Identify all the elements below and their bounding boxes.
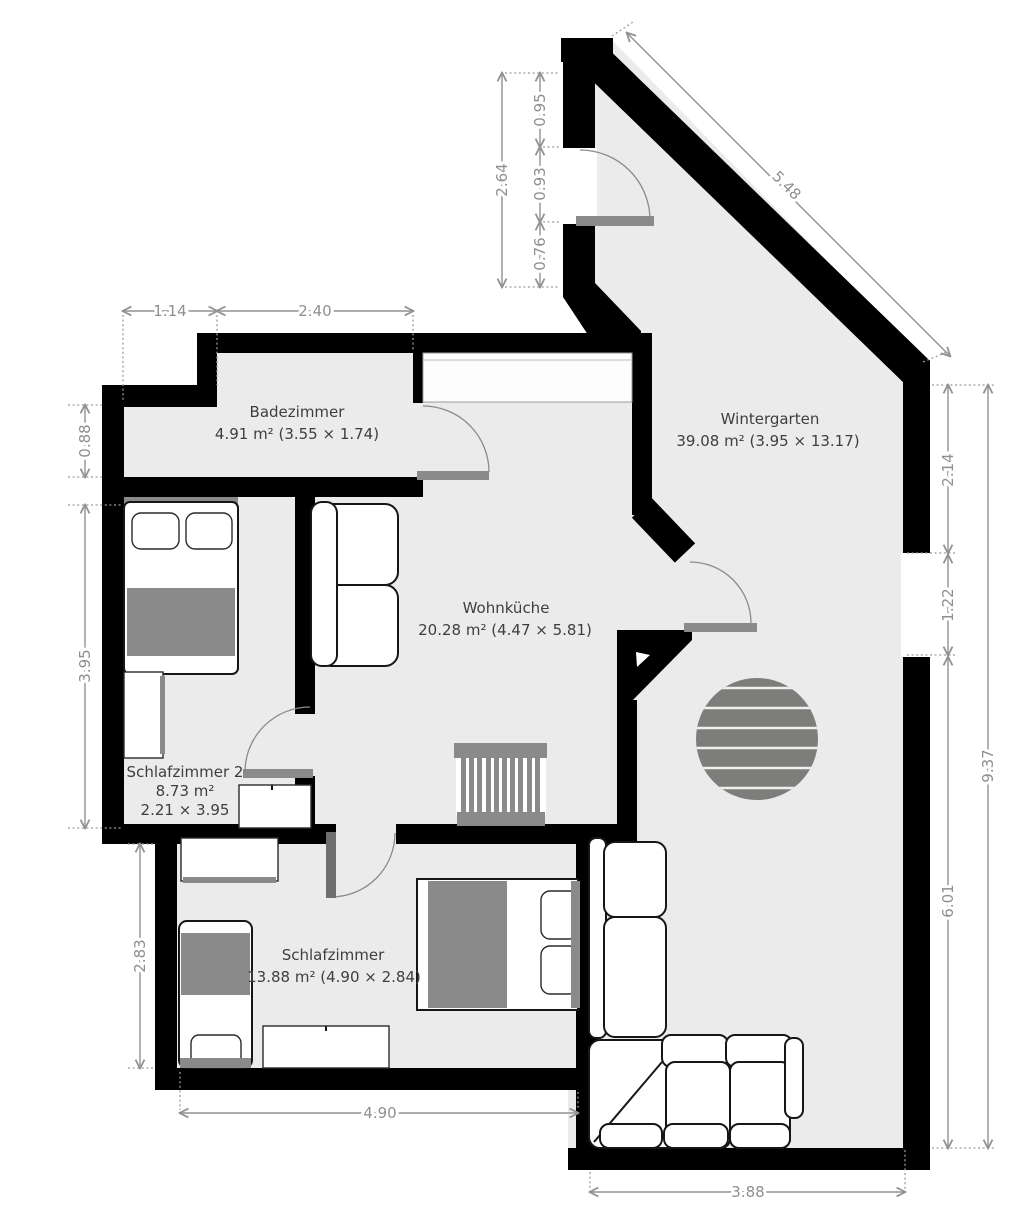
room-dims: 2.21 × 3.95: [141, 801, 230, 819]
dimension-label: 6.01: [939, 884, 957, 917]
door-leaf: [243, 769, 313, 778]
double-bed-icon: [124, 497, 238, 674]
room-name: Badezimmer: [250, 403, 346, 421]
wall-segment: [617, 700, 637, 830]
wall-segment: [102, 477, 423, 497]
dimension-label: 2.83: [131, 939, 149, 972]
room-name: Schlafzimmer: [282, 946, 385, 964]
door-leaf: [684, 623, 757, 632]
wall-segment: [568, 1148, 930, 1170]
sofa-icon: [311, 502, 398, 666]
dimension-label: 3.88: [731, 1183, 764, 1201]
wall-segment: [632, 333, 652, 515]
dimension-label: 2.40: [298, 302, 331, 320]
room-area: 4.91 m² (3.55 × 1.74): [215, 425, 379, 443]
dimension-label: 9.37: [979, 749, 997, 782]
dimension-label: 4.90: [363, 1104, 396, 1122]
kitchen-cabinet: [423, 353, 632, 402]
dimension-label: 3.95: [76, 649, 94, 682]
wall-segment: [197, 333, 217, 388]
window-right-wall: [901, 553, 932, 657]
room-area: 20.28 m² (4.47 × 5.81): [418, 621, 592, 639]
floorplan-svg: Badezimmer 4.91 m² (3.55 × 1.74) Winterg…: [0, 0, 1036, 1222]
wall-segment: [197, 333, 652, 353]
room-name: Wintergarten: [721, 410, 820, 428]
room-area: 13.88 m² (4.90 × 2.84): [247, 968, 421, 986]
room-area: 39.08 m² (3.95 × 13.17): [676, 432, 859, 450]
dimension-label: 0.76: [531, 237, 549, 270]
dimension-label: 1.14: [153, 302, 186, 320]
dimension-label: 1.22: [939, 588, 957, 621]
door-leaf: [576, 216, 654, 226]
dimension-label: 2.14: [939, 453, 957, 486]
wall-segment: [155, 1068, 600, 1090]
dimension-label: 0.93: [531, 167, 549, 200]
wall-segment: [903, 655, 930, 1170]
dimension-label: 0.88: [76, 424, 94, 457]
tv-stand-icon: [181, 838, 278, 883]
door-leaf: [417, 471, 489, 480]
single-bed-icon: [179, 921, 252, 1068]
wall-segment: [903, 360, 930, 555]
floorplan-page: Badezimmer 4.91 m² (3.55 × 1.74) Winterg…: [0, 0, 1036, 1222]
dimension-label: 5.48: [768, 167, 804, 203]
door-leaf: [326, 832, 336, 898]
door-opening-wintergarten: [561, 148, 597, 224]
dresser-icon: [263, 1026, 389, 1068]
wall-segment: [413, 353, 423, 403]
desk-icon: [124, 672, 165, 758]
radiator-icon: [454, 743, 547, 826]
room-name: Wohnküche: [463, 599, 550, 617]
wall-segment: [155, 844, 177, 1090]
room-area: 8.73 m²: [156, 782, 215, 800]
dimension-label: 2.64: [493, 163, 511, 196]
double-bed-icon: [417, 879, 580, 1010]
dimension-label: 0.95: [531, 93, 549, 126]
nightstand-icon: [239, 785, 311, 828]
room-name: Schlafzimmer 2: [127, 763, 244, 781]
wall-segment: [102, 385, 124, 844]
